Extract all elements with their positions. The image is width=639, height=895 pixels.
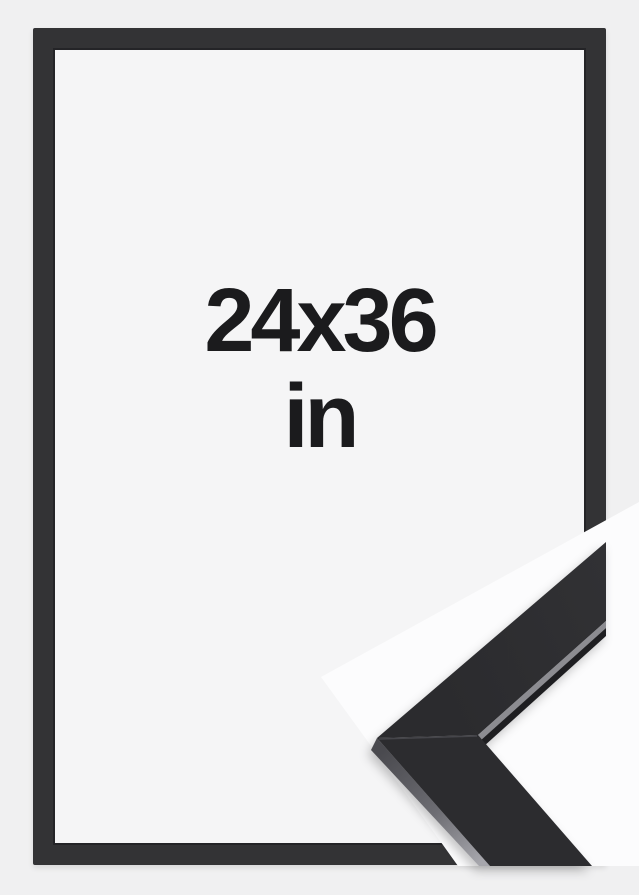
product-image: 24x36 in (0, 0, 639, 895)
frame-corner-detail-photo (0, 0, 639, 895)
